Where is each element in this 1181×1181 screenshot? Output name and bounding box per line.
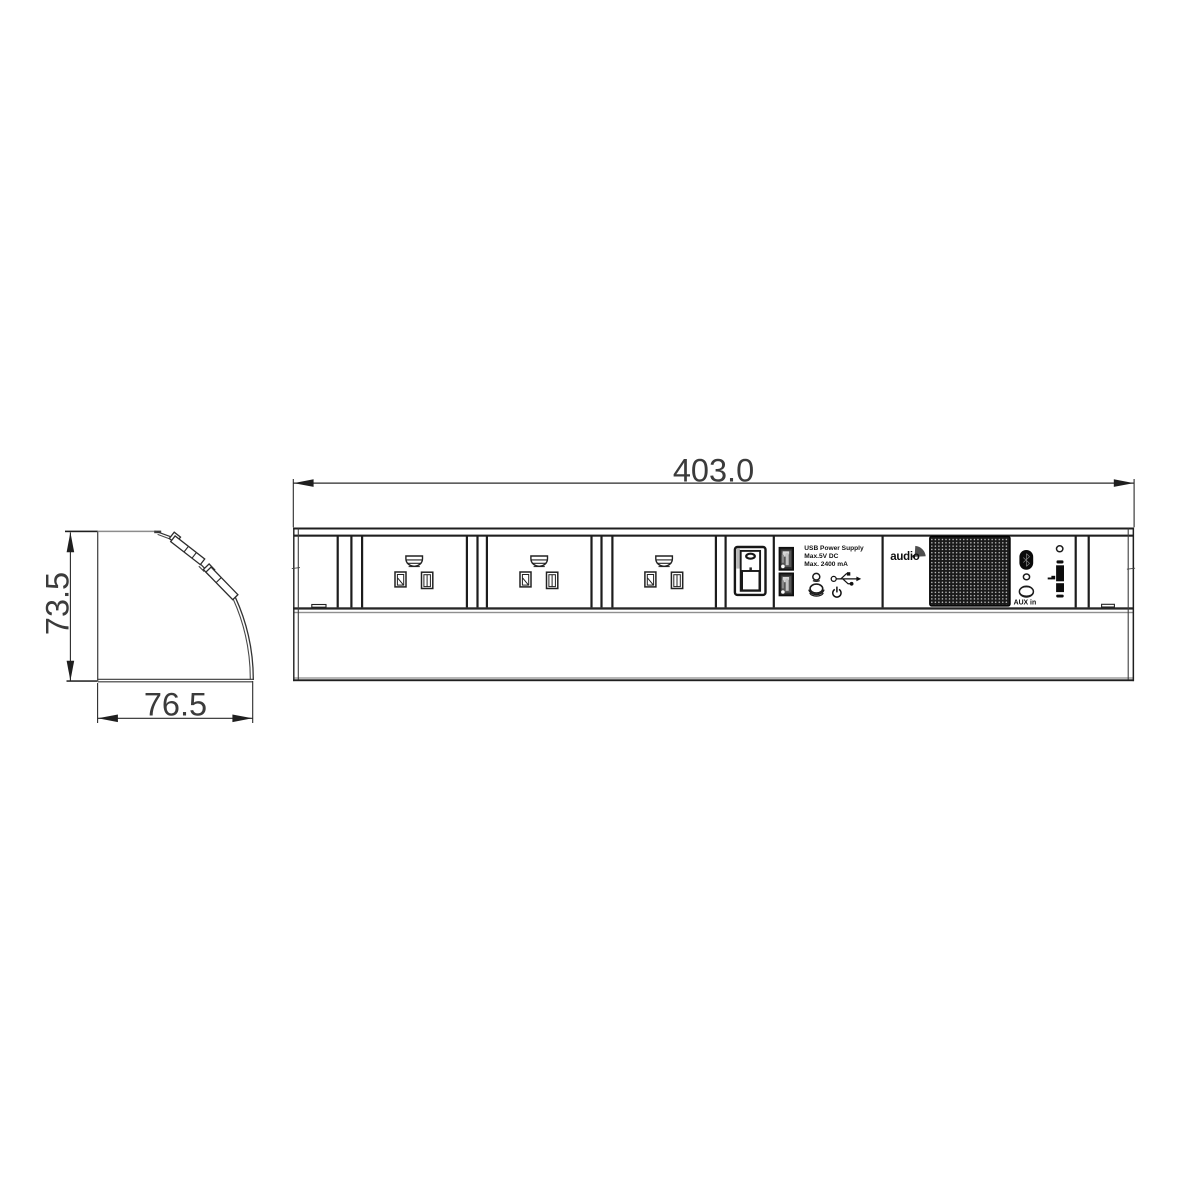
svg-text:audio: audio [890,551,919,563]
svg-text:Max. 2400 mA: Max. 2400 mA [804,561,848,568]
svg-text:USB Power Supply: USB Power Supply [804,545,864,552]
svg-text:73.5: 73.5 [40,572,76,635]
svg-text:AUX in: AUX in [1014,600,1037,607]
svg-text:Max.5V DC: Max.5V DC [804,553,838,560]
svg-text:403.0: 403.0 [673,452,754,488]
svg-text:76.5: 76.5 [144,687,207,723]
